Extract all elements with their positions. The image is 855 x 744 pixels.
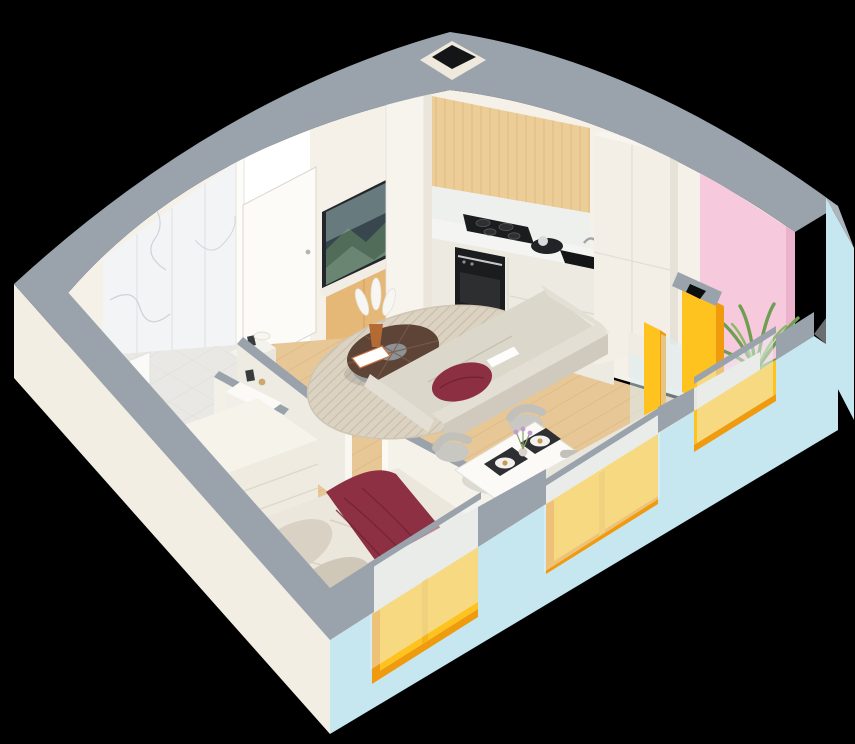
- oven-knob: [470, 262, 473, 265]
- kettle: [538, 236, 548, 246]
- hob-burner: [484, 229, 496, 235]
- bottle: [259, 379, 266, 386]
- hob-burner: [508, 233, 520, 239]
- column-side: [424, 78, 432, 330]
- lavender: [514, 430, 519, 435]
- white-feather: [371, 278, 381, 310]
- hob-burner: [499, 223, 513, 230]
- door-handle: [306, 250, 311, 255]
- food: [537, 438, 542, 443]
- floor-plan-stage: Isometric apartment floor plan Cutaway 3…: [0, 0, 855, 744]
- floor-plan-render: [0, 0, 855, 744]
- food: [502, 460, 507, 465]
- tall-cabinet-side: [670, 150, 678, 348]
- towel-roll: [254, 332, 270, 340]
- lavender: [521, 427, 526, 432]
- oven-knob: [462, 260, 465, 263]
- hall-doorway: [236, 130, 316, 370]
- dining-chair: [435, 436, 469, 462]
- hob-burner: [476, 219, 490, 226]
- lavender: [528, 431, 533, 436]
